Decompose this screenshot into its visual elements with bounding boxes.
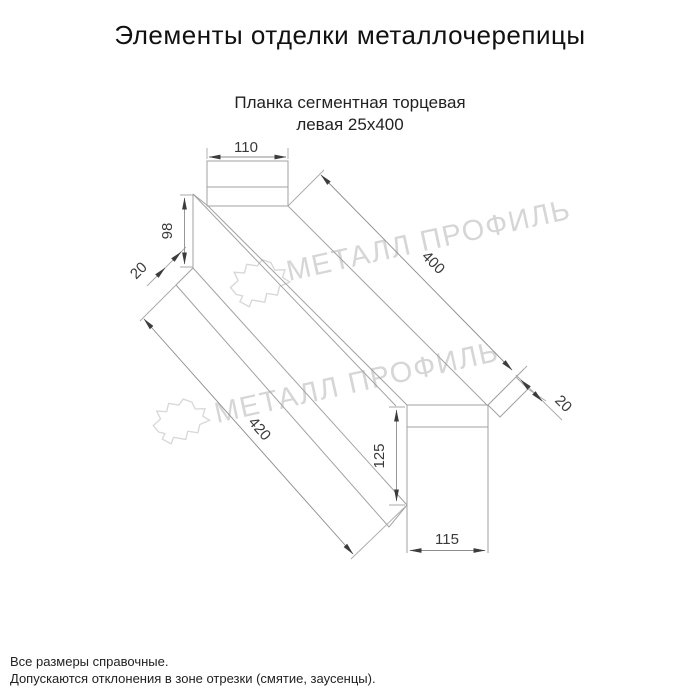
footnote-2: Допускаются отклонения в зоне отрезки (с… (10, 670, 376, 687)
dim-arrow-lip-left-2 (175, 252, 181, 258)
watermark-1: МЕТАЛЛ ПРОФИЛЬ (226, 194, 574, 310)
dim-label-115: 115 (435, 531, 459, 548)
watermark-2: МЕТАЛЛ ПРОФИЛЬ (149, 336, 502, 447)
dim-line-420 (144, 319, 353, 554)
top-end-face (207, 161, 288, 206)
dim-label-98: 98 (159, 223, 176, 240)
footnote-1: Все размеры справочные. (10, 653, 376, 670)
dim-label-110: 110 (234, 139, 258, 156)
watermark-text: МЕТАЛЛ ПРОФИЛЬ (284, 194, 574, 288)
top-apex-edges (176, 194, 208, 285)
dim-label-20-left: 20 (127, 259, 151, 283)
dim-label-20-right: 20 (551, 392, 575, 416)
dim-arrow-lip-left-1 (159, 268, 165, 274)
technical-drawing: МЕТАЛЛ ПРОФИЛЬ МЕТАЛЛ ПРОФИЛЬ (0, 0, 700, 700)
dimension-labels: 110 98 20 400 420 20 125 115 (127, 139, 575, 548)
dim-label-125: 125 (371, 443, 388, 468)
brand-cloud-icon (149, 394, 213, 446)
long-edge-1 (193, 194, 396, 406)
end-lip-square (488, 377, 528, 417)
footnotes: Все размеры справочные. Допускаются откл… (10, 653, 376, 687)
